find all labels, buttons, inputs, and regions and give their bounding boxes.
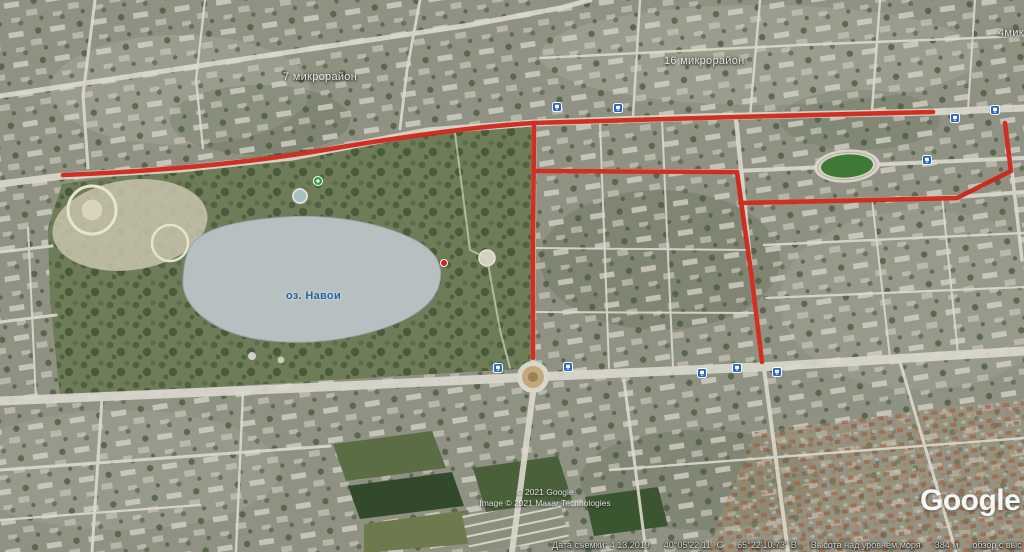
transit-stop-icon[interactable] (773, 368, 782, 377)
google-logo: Google (920, 484, 1020, 518)
capture-date: Дата съемки: 4.13.2019 (552, 540, 650, 550)
park-poi-icon[interactable] (314, 177, 323, 186)
longitude-readout: 65°22'10.73" В (737, 540, 797, 550)
fountain (293, 189, 307, 203)
map-viewport[interactable]: 7 микрорайон 16 микрорайон 4мик оз. Наво… (0, 0, 1024, 552)
status-bar: Дата съемки: 4.13.2019 40°05'22.11" С 65… (552, 538, 1024, 551)
transit-stop-icon[interactable] (494, 364, 503, 373)
lake-label: оз. Навои (286, 290, 341, 302)
transit-stop-icon[interactable] (923, 156, 932, 165)
district-label-7: 7 микрорайон (283, 71, 357, 83)
district-label-16: 16 микрорайон (664, 55, 745, 67)
copyright-attribution: © 2021 Google Image © 2021 Maxar Technol… (440, 487, 650, 509)
transit-stop-icon[interactable] (991, 106, 1000, 115)
eye-altitude: обзор с выс (972, 540, 1021, 550)
transit-stop-icon[interactable] (951, 114, 960, 123)
copyright-line-2: Image © 2021 Maxar Technologies (440, 498, 650, 509)
route-branch-middle (534, 171, 737, 172)
copyright-line-1: © 2021 Google (440, 487, 650, 498)
elevation-value: 384 м (935, 540, 959, 550)
latitude-readout: 40°05'22.11" С (664, 540, 723, 550)
elevation-label: Высота над уровнем моря (811, 540, 921, 550)
route-vertical-1 (533, 123, 534, 358)
transit-stop-icon[interactable] (614, 104, 623, 113)
placemark-icon[interactable] (441, 260, 448, 267)
satellite-imagery (0, 0, 1024, 552)
transit-stop-icon[interactable] (553, 103, 562, 112)
transit-stop-icon[interactable] (733, 364, 742, 373)
transit-stop-icon[interactable] (564, 363, 573, 372)
transit-stop-icon[interactable] (698, 369, 707, 378)
roundabout (517, 361, 549, 393)
district-label-4: 4мик (998, 27, 1024, 39)
